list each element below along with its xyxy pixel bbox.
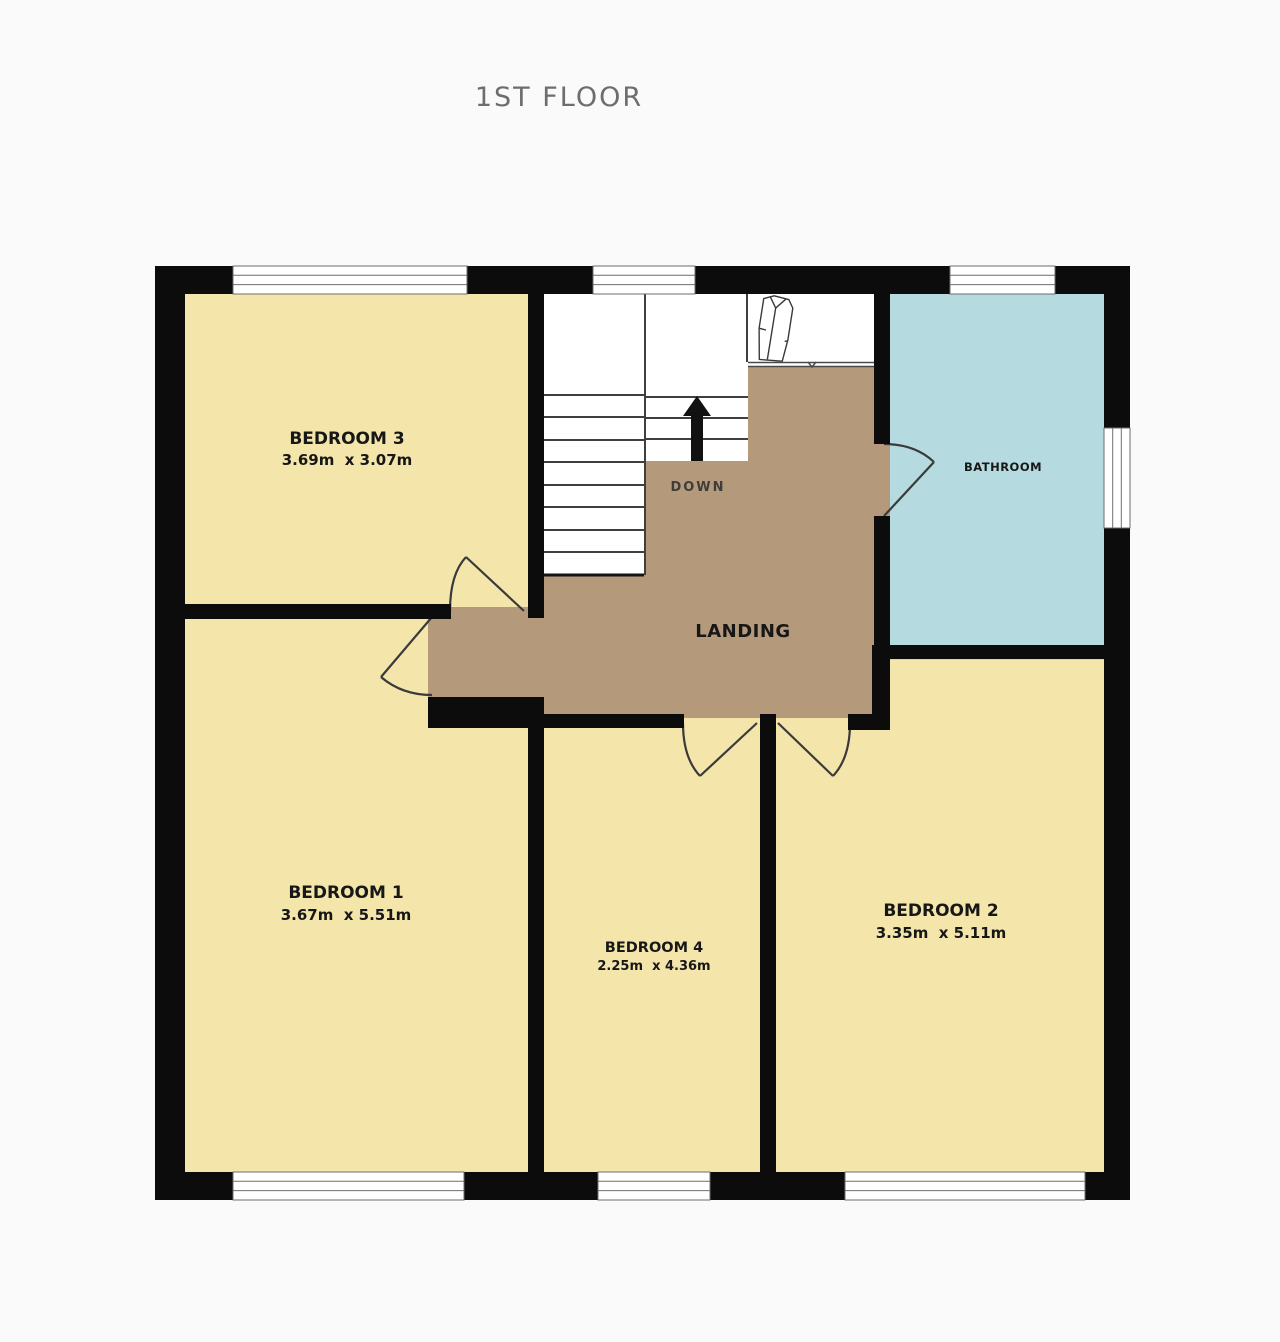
wall-bathroom-south [872, 645, 1130, 659]
wall-exterior-right [1104, 266, 1130, 1200]
window-bedroom1-bottom [233, 1172, 464, 1200]
window-bedroom2-bottom [845, 1172, 1085, 1200]
label-stairs-down: DOWN [670, 480, 725, 495]
label-bedroom3-dims: 3.69m x 3.07m [282, 451, 413, 469]
wall-landing-alcove-south [428, 697, 544, 728]
window-bedroom4-bottom [598, 1172, 710, 1200]
window-bathroom-right [1104, 428, 1130, 528]
label-bedroom4-dims: 2.25m x 4.36m [597, 959, 710, 974]
wall-bedroom1-bedroom4 [528, 714, 544, 1200]
wall-bathroom-west-upper [874, 280, 890, 444]
wall-exterior-left [155, 266, 185, 1200]
label-bedroom3-name: BEDROOM 3 [289, 429, 404, 449]
wall-bedroom4-bedroom2 [760, 714, 776, 1200]
label-bathroom-name: BATHROOM [964, 460, 1042, 474]
floor-plan: BEDROOM 3 3.69m x 3.07m BEDROOM 1 3.67m … [0, 0, 1280, 1342]
label-bedroom2-name: BEDROOM 2 [883, 901, 998, 921]
window-stairwell-top [593, 266, 695, 294]
label-bedroom2-dims: 3.35m x 5.11m [876, 924, 1007, 942]
wall-bedroom3-east [528, 280, 544, 618]
window-bathroom-top [950, 266, 1055, 294]
wall-landing-south [544, 714, 684, 728]
label-bedroom1-dims: 3.67m x 5.51m [281, 906, 412, 924]
label-bedroom1-name: BEDROOM 1 [288, 883, 403, 903]
label-bedroom4-name: BEDROOM 4 [605, 940, 703, 956]
room-bedroom-2-floor [760, 645, 1130, 1200]
wall-bathroom-west-lower [874, 516, 890, 651]
label-landing-name: LANDING [695, 621, 790, 642]
wall-bedroom3-south [155, 604, 451, 619]
window-bedroom3-top [233, 266, 467, 294]
